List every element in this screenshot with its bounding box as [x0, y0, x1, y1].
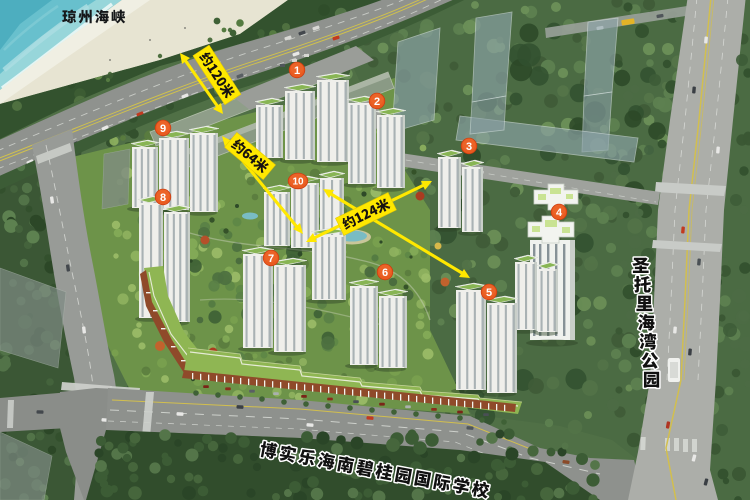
svg-text:4: 4 — [556, 207, 563, 219]
svg-text:10: 10 — [292, 177, 304, 188]
svg-text:5: 5 — [486, 287, 492, 299]
svg-text:6: 6 — [382, 267, 388, 279]
svg-text:7: 7 — [268, 253, 274, 265]
svg-text:2: 2 — [374, 96, 380, 108]
svg-text:3: 3 — [466, 141, 472, 153]
svg-text:9: 9 — [160, 123, 166, 135]
svg-text:8: 8 — [160, 192, 166, 204]
svg-text:1: 1 — [294, 65, 300, 77]
